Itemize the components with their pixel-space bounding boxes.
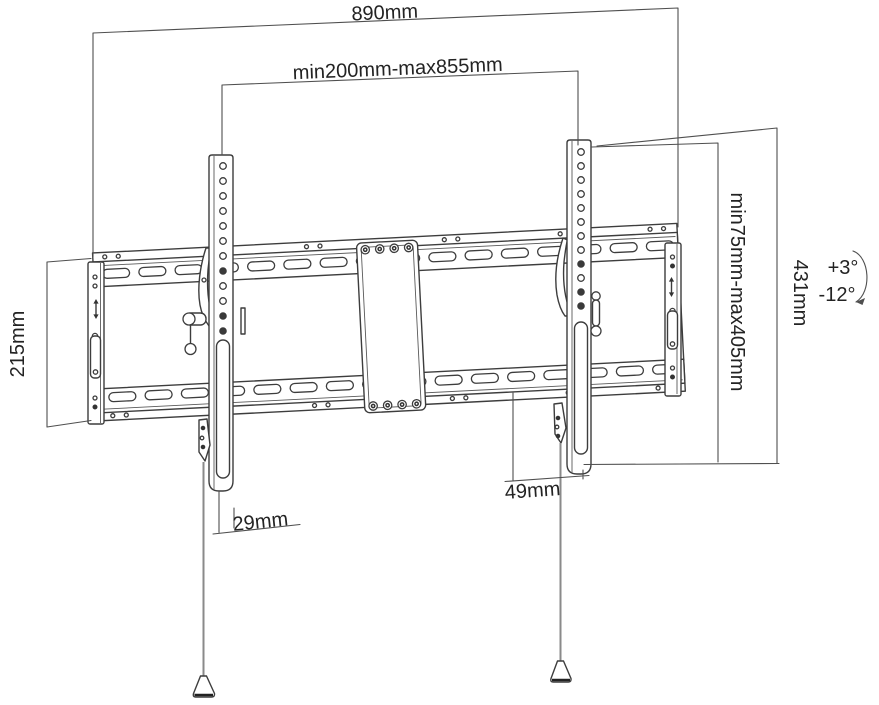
label-bottom-offset-right: 49mm [504, 478, 561, 504]
label-overall-width: 890mm [351, 1, 419, 26]
label-tilt-up: +3° [828, 257, 859, 279]
vesa-slot [575, 322, 588, 454]
label-vesa-height-range: min75mm-max405mm [726, 193, 748, 392]
dimension-diagram: 890mm min200mm-max855mm 215mm min75mm-ma… [0, 0, 879, 705]
label-wall-plate-height: 215mm [7, 311, 29, 378]
left-end-link [88, 262, 104, 424]
left-plumb-bob [193, 676, 214, 697]
label-vesa-width-range: min200mm-max855mm [292, 54, 503, 84]
right-plumb-bob [551, 661, 571, 682]
center-plate [356, 240, 426, 413]
label-bottom-offset-left: 29mm [232, 508, 290, 536]
left-tilt-arm-hole [202, 278, 206, 282]
label-tilt-down: -12° [819, 284, 856, 306]
left-lock-plate [241, 308, 245, 334]
wall-mount-drawing: 890mm min200mm-max855mm 215mm min75mm-ma… [0, 0, 879, 705]
vesa-slot [217, 340, 230, 478]
right-tilt-handle [591, 292, 601, 336]
right-end-link [665, 243, 681, 396]
label-bracket-height: 431mm [789, 260, 811, 327]
